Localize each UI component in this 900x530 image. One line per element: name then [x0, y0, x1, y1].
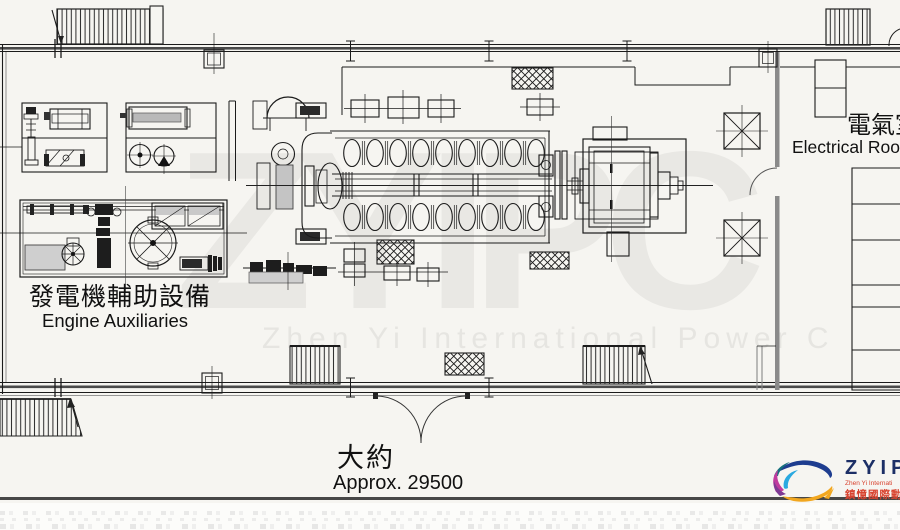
valve-manifold-icon [87, 204, 121, 268]
small-pump-skid [243, 252, 336, 290]
engine-hall-boundary [229, 67, 900, 181]
column-xbox-lower [716, 212, 768, 264]
label-dimension-en: Approx. 29500 [333, 473, 463, 494]
label-dimension-zh: 大約 [337, 444, 395, 472]
label-electrical-room-zh: 電氣室 [847, 113, 900, 138]
hatch-patch-3 [530, 252, 569, 269]
top-wall [0, 45, 900, 52]
hatch-patch-4 [445, 353, 484, 375]
floor-mounts-top [344, 90, 461, 124]
door-arc-icon [750, 168, 777, 195]
column-top-junction [759, 41, 777, 73]
floor-mount-single [520, 93, 560, 121]
label-electrical-room-en: Electrical Room [792, 138, 900, 156]
footer-bar [0, 503, 900, 530]
staircase-top-left-icon [52, 6, 163, 44]
column-xbox-upper [716, 105, 768, 157]
aux-module-a [22, 103, 107, 172]
column-top-left [204, 33, 224, 74]
electrical-top-box [815, 60, 846, 117]
staircase-outside-icon [0, 398, 82, 436]
coupling-assembly [539, 151, 589, 219]
auxiliary-skid [20, 186, 247, 292]
staircase-bottom-left-icon [290, 346, 340, 384]
label-engine-auxiliaries-en: Engine Auxiliaries [42, 311, 188, 330]
left-wall [0, 44, 22, 394]
electrical-room-wall [750, 52, 780, 390]
footer-divider [0, 497, 900, 500]
electrical-cabinets [852, 168, 900, 390]
bottom-wall [0, 383, 900, 396]
double-door-icon [373, 392, 470, 443]
hatch-patch-2 [377, 240, 414, 264]
floor-plan-page: ZYIPC Zhen Yi International Power C [0, 0, 900, 530]
tank-icon [128, 217, 178, 269]
hatch-patch-1 [512, 68, 553, 89]
label-engine-auxiliaries-zh: 發電機輔助設備 [29, 284, 211, 310]
generator-assembly [575, 116, 686, 262]
staircase-bottom-right-icon [583, 346, 652, 384]
staircase-top-right-icon [826, 9, 900, 46]
turbocharger-assembly [253, 97, 342, 244]
cylinder-row-bottom [344, 204, 545, 231]
cylinder-row-top [344, 140, 545, 167]
aux-module-b [120, 103, 216, 174]
floor-plan-drawing [0, 0, 900, 530]
